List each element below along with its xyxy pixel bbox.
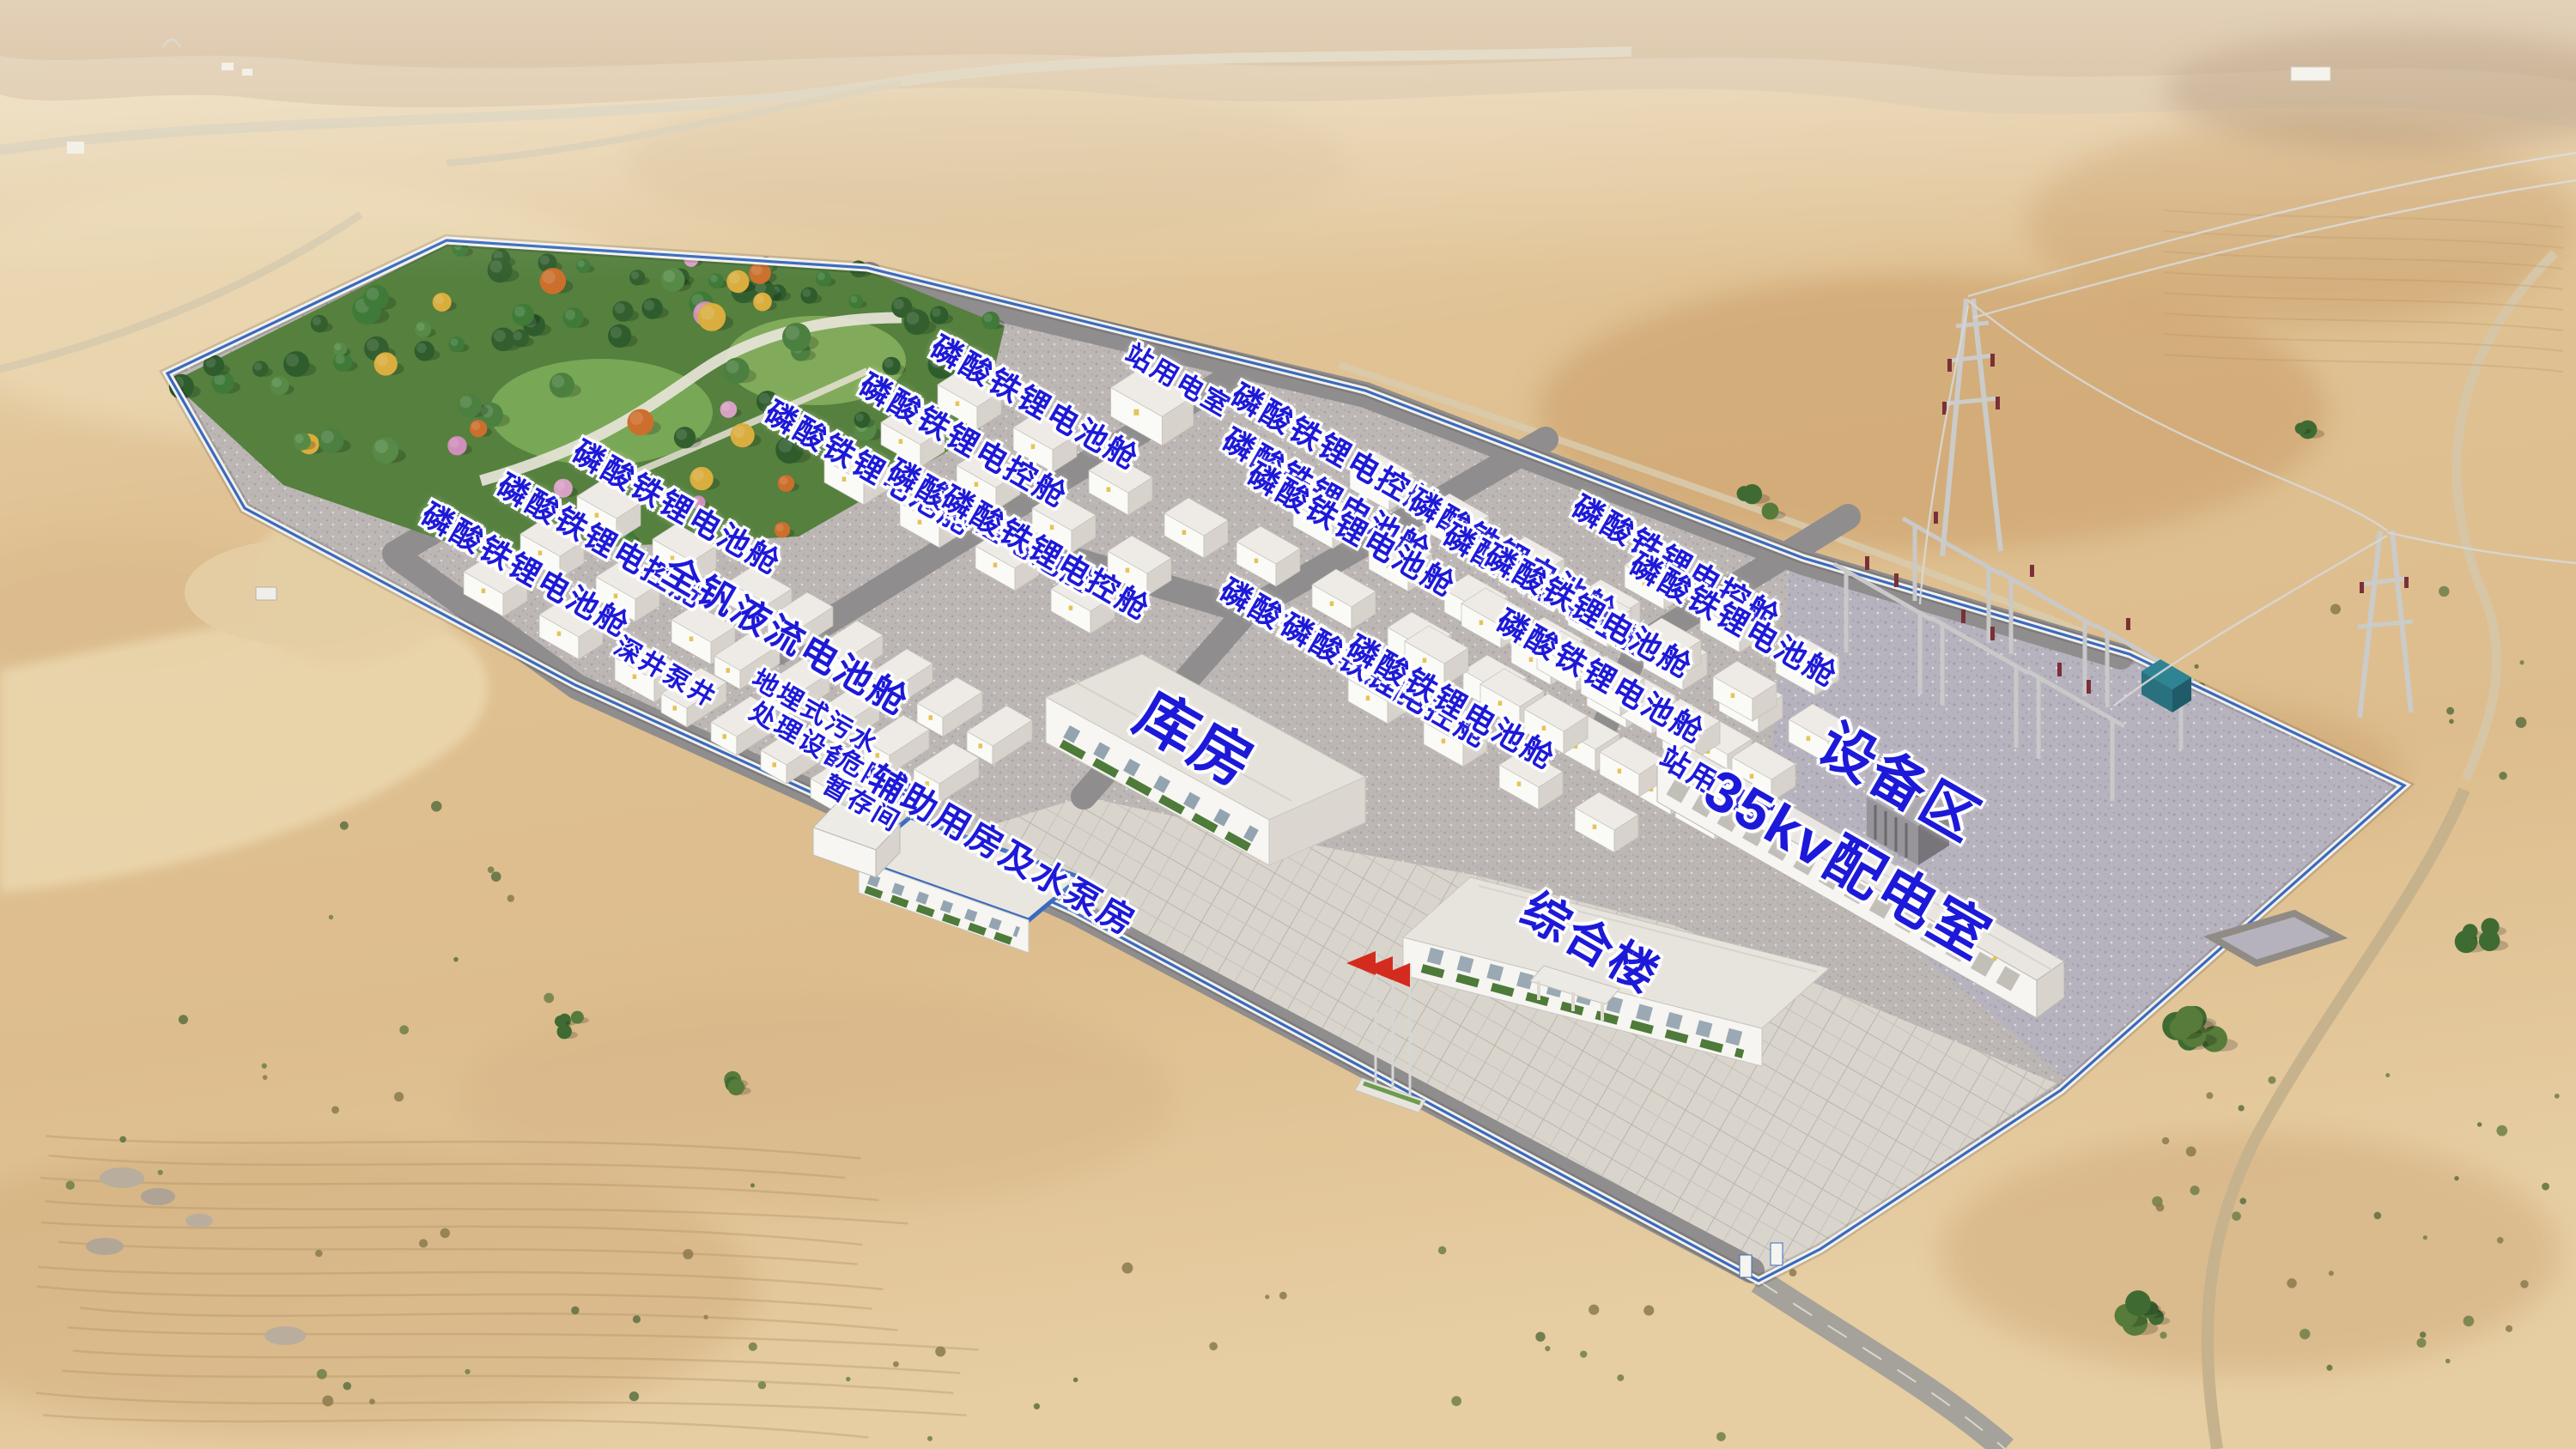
aerial-rendering-energy-storage-plant: 站用电室磷酸铁锂电池舱磷酸铁锂电控舱磷酸铁锂电池舱磷酸铁锂电池舱磷酸铁锂电控舱磷… bbox=[0, 0, 2576, 1449]
scene-canvas bbox=[0, 0, 2576, 1449]
gate-pillar bbox=[1740, 1255, 1752, 1277]
gate-pillar bbox=[1771, 1243, 1783, 1265]
haze-overlay bbox=[0, 0, 2576, 283]
